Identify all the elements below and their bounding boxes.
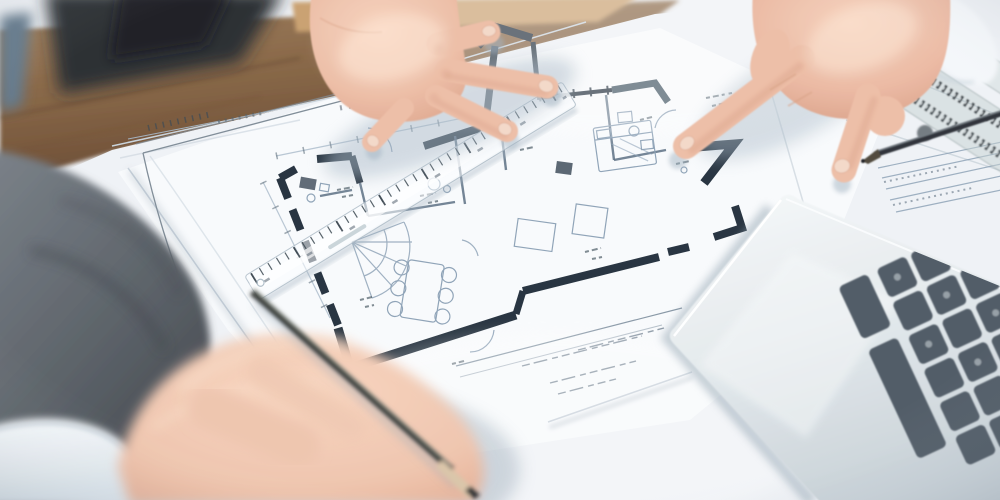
photo-architects-blueprint xyxy=(0,0,1000,500)
photo-canvas xyxy=(0,0,1000,500)
vignette xyxy=(0,0,1000,500)
